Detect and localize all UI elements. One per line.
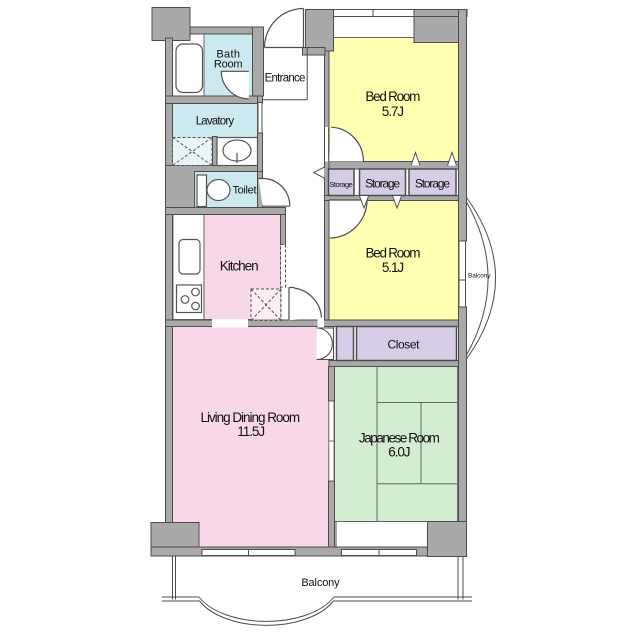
svg-text:Kitchen: Kitchen: [220, 259, 259, 274]
svg-text:Living Dining Room: Living Dining Room: [200, 410, 300, 425]
svg-text:Balcony: Balcony: [468, 273, 491, 280]
svg-text:5.1J: 5.1J: [382, 260, 404, 275]
svg-text:11.5J: 11.5J: [237, 424, 265, 439]
svg-text:Bed Room: Bed Room: [366, 246, 421, 261]
svg-text:5.7J: 5.7J: [382, 104, 404, 119]
svg-text:Lavatory: Lavatory: [196, 116, 235, 128]
svg-text:Japanese Room: Japanese Room: [359, 431, 440, 446]
svg-text:Closet: Closet: [388, 338, 421, 352]
svg-text:6.0J: 6.0J: [388, 445, 410, 460]
svg-text:Room: Room: [214, 59, 243, 71]
svg-text:Bed Room: Bed Room: [365, 89, 420, 104]
svg-text:Storage: Storage: [415, 177, 450, 191]
svg-text:Storage: Storage: [365, 177, 400, 191]
svg-text:Toilet: Toilet: [232, 184, 256, 196]
svg-text:Storage: Storage: [329, 180, 352, 189]
svg-text:Entrance: Entrance: [265, 73, 306, 85]
svg-text:Balcony: Balcony: [301, 577, 340, 589]
